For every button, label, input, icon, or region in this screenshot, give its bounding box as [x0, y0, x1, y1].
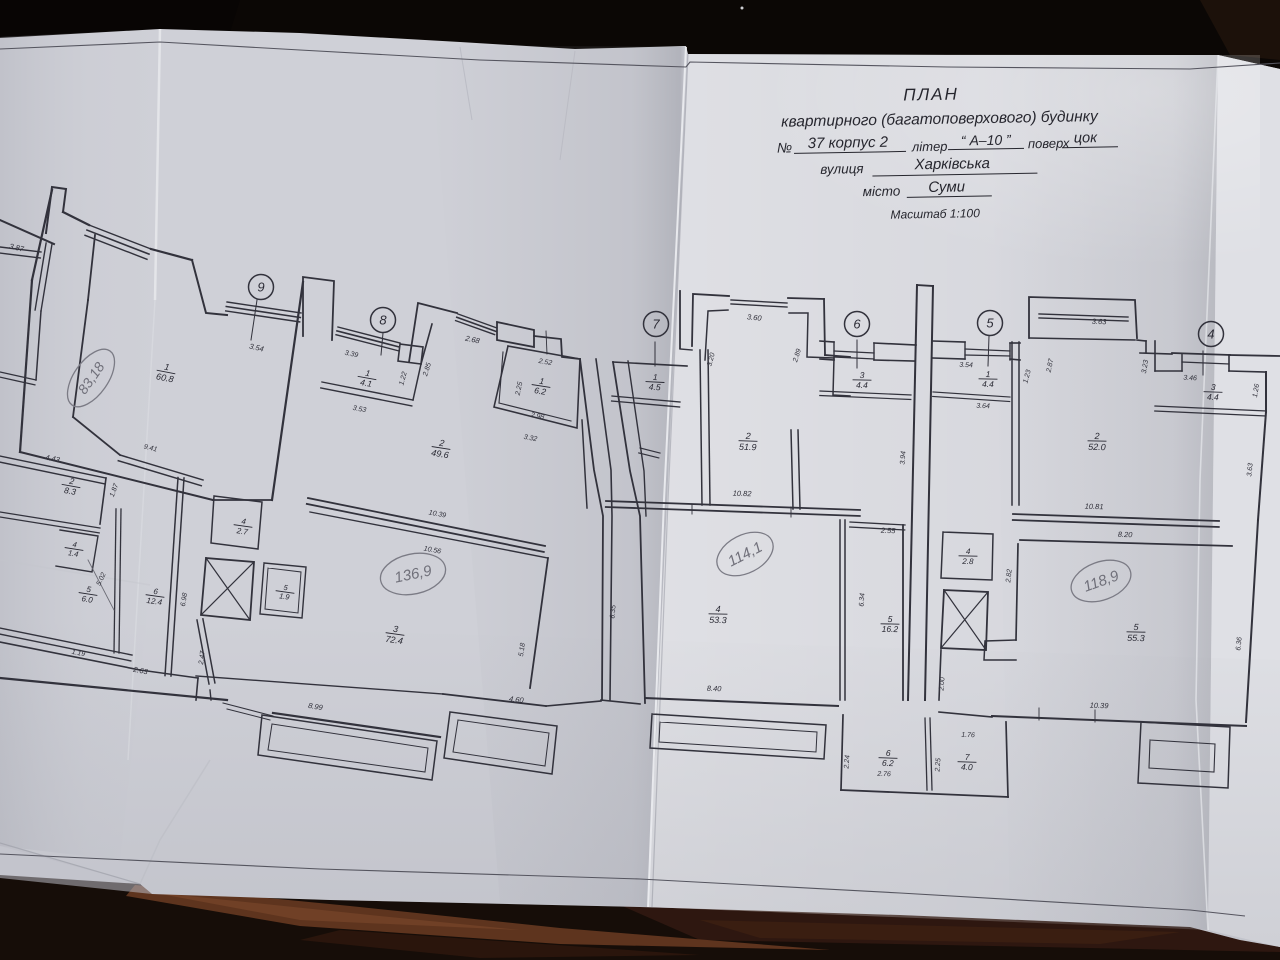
svg-text:7: 7	[652, 317, 660, 332]
svg-text:8.3: 8.3	[63, 485, 77, 497]
svg-text:10.39: 10.39	[1090, 701, 1110, 711]
svg-text:9: 9	[257, 280, 264, 295]
svg-text:6.35: 6.35	[609, 605, 617, 619]
svg-text:3.60: 3.60	[747, 312, 763, 323]
svg-text:4: 4	[966, 547, 971, 556]
svg-text:вулиця: вулиця	[820, 161, 864, 177]
svg-text:4.0: 4.0	[961, 762, 973, 772]
svg-text:2.24: 2.24	[843, 755, 851, 770]
svg-text:1.76: 1.76	[961, 732, 975, 739]
svg-text:№: №	[777, 139, 792, 155]
svg-text:4.4: 4.4	[1207, 392, 1219, 402]
svg-text:4: 4	[1207, 327, 1214, 342]
svg-text:6.0: 6.0	[81, 594, 94, 605]
svg-text:2.76: 2.76	[876, 771, 891, 779]
svg-text:2.25: 2.25	[934, 758, 942, 773]
svg-text:місто: місто	[863, 184, 901, 200]
svg-text:2: 2	[1093, 431, 1099, 441]
svg-text:52.0: 52.0	[1088, 442, 1106, 452]
svg-text:8: 8	[379, 313, 387, 328]
svg-text:4.4: 4.4	[856, 380, 868, 390]
svg-text:2: 2	[744, 431, 750, 441]
svg-text:Харківська: Харківська	[913, 155, 990, 173]
svg-text:6.2: 6.2	[534, 385, 548, 397]
svg-text:3.54: 3.54	[959, 362, 973, 369]
svg-text:2.8: 2.8	[961, 557, 974, 566]
svg-text:5: 5	[888, 614, 893, 624]
svg-text:Масштаб 1:100: Масштаб 1:100	[890, 206, 980, 222]
svg-text:3: 3	[860, 370, 865, 380]
svg-text:6.36: 6.36	[1235, 637, 1243, 651]
svg-text:1.4: 1.4	[67, 548, 79, 559]
svg-text:1: 1	[986, 369, 991, 379]
svg-text:Суми: Суми	[928, 178, 966, 196]
svg-text:літер: літер	[911, 139, 948, 155]
svg-text:37 корпус 2: 37 корпус 2	[808, 134, 889, 152]
svg-text:поверх: поверх	[1028, 136, 1070, 152]
svg-text:4.4: 4.4	[982, 379, 994, 389]
svg-text:1.9: 1.9	[279, 591, 291, 601]
svg-text:6: 6	[853, 317, 861, 332]
svg-text:3.63: 3.63	[1092, 317, 1108, 327]
svg-text:3.94: 3.94	[900, 451, 908, 465]
svg-text:4.5: 4.5	[649, 382, 662, 393]
svg-text:55.3: 55.3	[1127, 633, 1145, 643]
svg-text:8.40: 8.40	[707, 684, 723, 694]
svg-text:цок: цок	[1074, 130, 1099, 146]
svg-text:3.46: 3.46	[1183, 375, 1197, 383]
svg-text:2.55: 2.55	[880, 526, 897, 536]
svg-text:51.9: 51.9	[739, 442, 757, 453]
svg-text:7: 7	[965, 752, 970, 762]
svg-text:3.63: 3.63	[1246, 463, 1254, 477]
svg-text:53.3: 53.3	[709, 615, 727, 625]
svg-text:2.7: 2.7	[235, 526, 249, 537]
svg-text:10.81: 10.81	[1085, 502, 1104, 512]
svg-text:6.2: 6.2	[882, 758, 894, 768]
svg-text:ПЛАН: ПЛАН	[903, 84, 959, 104]
svg-text:4.60: 4.60	[509, 694, 525, 705]
svg-text:“ А–10 ”: “ А–10 ”	[961, 132, 1012, 149]
svg-text:6: 6	[886, 748, 891, 758]
svg-text:10.82: 10.82	[733, 489, 753, 499]
svg-text:3.64: 3.64	[976, 403, 990, 410]
svg-text:4: 4	[715, 604, 720, 614]
svg-text:6.34: 6.34	[859, 593, 867, 607]
svg-text:5: 5	[986, 316, 994, 331]
svg-text:4.1: 4.1	[359, 377, 373, 389]
svg-text:3: 3	[1211, 382, 1216, 392]
svg-text:8.20: 8.20	[1118, 530, 1134, 540]
svg-text:1: 1	[653, 372, 659, 382]
svg-text:16.2: 16.2	[882, 624, 899, 634]
